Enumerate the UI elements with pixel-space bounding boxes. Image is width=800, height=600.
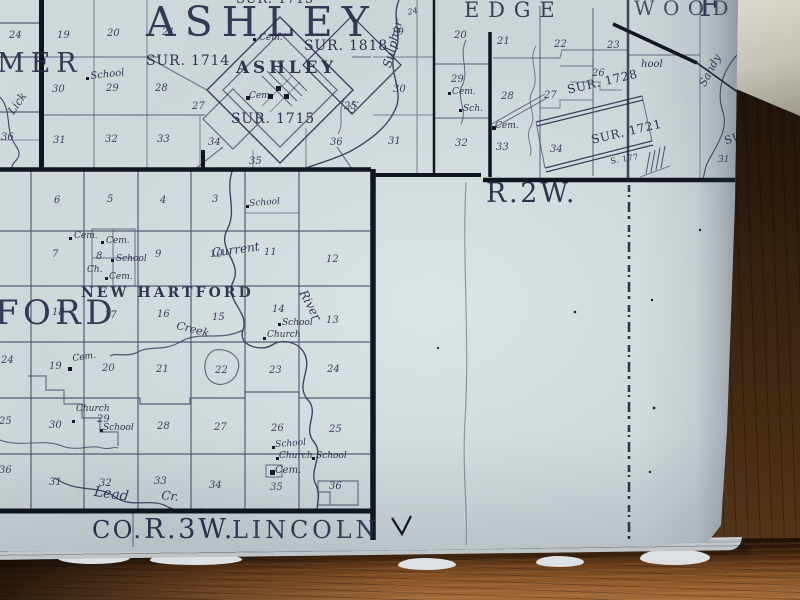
section-number: 25 — [0, 417, 12, 427]
section-number: 4 — [160, 196, 166, 206]
section-number: 27 — [544, 91, 557, 101]
poi-label: Sch. — [463, 105, 483, 114]
section-number: 18 — [52, 308, 65, 318]
section-number: 21 — [162, 28, 175, 38]
section-number: 31 — [49, 478, 62, 488]
poi-marker — [278, 323, 281, 326]
section-number: 24 — [407, 7, 419, 17]
poi-label: Cem. — [452, 88, 476, 97]
section-number: 20 — [454, 31, 467, 41]
poi-label: Cem. — [259, 34, 283, 43]
section-number: 25 — [329, 425, 342, 435]
range-label: R.2W. — [486, 180, 577, 207]
township-name-partial-mer: MER — [0, 50, 83, 77]
survey-label: S. 177 — [610, 153, 639, 166]
section-number: 36 — [329, 482, 342, 492]
poi-marker — [448, 92, 451, 95]
section-number: 21 — [156, 365, 169, 375]
poi-label: School — [103, 424, 134, 433]
section-number: 16 — [157, 310, 170, 320]
section-number: 7 — [52, 250, 58, 260]
section-number: 30 — [49, 421, 62, 431]
section-number: 22 — [554, 40, 567, 50]
poi-marker — [270, 470, 275, 475]
poi-marker — [253, 38, 256, 41]
poi-label: Cem. — [72, 352, 97, 364]
section-number: 32 — [105, 135, 118, 145]
poi-marker — [101, 241, 104, 244]
poi-label: School — [282, 319, 313, 328]
section-number: 14 — [272, 305, 285, 315]
poi-marker — [246, 205, 249, 208]
section-number: 36 — [330, 138, 343, 148]
section-number: 31 — [53, 136, 66, 146]
poi-label: Cem. — [106, 237, 130, 246]
poi-marker — [69, 237, 72, 240]
poi-marker — [86, 77, 89, 80]
section-number: 36 — [0, 466, 12, 476]
poi-label: Ch. — [87, 266, 103, 275]
section-number: 11 — [264, 248, 277, 258]
poi-label: Church — [76, 405, 110, 414]
section-number: 9 — [155, 250, 161, 260]
section-number: 6 — [54, 196, 60, 206]
poi-label: Cem. — [109, 273, 133, 282]
section-number: 27 — [192, 102, 205, 112]
section-number: 20 — [102, 364, 115, 374]
poi-label: Church — [267, 331, 301, 340]
poi-label: School — [316, 452, 347, 461]
section-number: 12 — [326, 255, 339, 265]
torn-paper-fragment — [398, 558, 456, 570]
poi-label: School — [275, 439, 306, 450]
poi-marker — [492, 126, 496, 130]
poi-marker — [284, 94, 289, 99]
section-number: 34 — [550, 145, 563, 155]
section-number: 8 — [96, 252, 102, 262]
poi-marker — [272, 446, 275, 449]
township-label-lincoln: LINCOLN — [232, 518, 380, 542]
section-number: 24 — [9, 31, 22, 41]
section-number: 35 — [249, 157, 262, 167]
section-number: 29 — [106, 84, 119, 94]
section-number: 3 — [212, 195, 218, 205]
photo-of-plat-map-on-table: SUR. 1715ASHLEYMER24192021SchoolLick3029… — [0, 0, 800, 600]
section-number: 31 — [388, 137, 401, 147]
section-number: 19 — [49, 362, 62, 372]
creek-name: Creek — [175, 320, 210, 339]
creek-name: Cr. — [347, 99, 362, 116]
section-number: 34 — [209, 481, 222, 491]
survey-label: SUR. 1818 — [304, 39, 388, 53]
section-number: 35 — [270, 483, 283, 493]
town-name-ashley: ASHLEY — [236, 60, 337, 77]
section-number: 29 — [451, 75, 464, 85]
section-number: 33 — [157, 135, 170, 145]
survey-label: SUR. 1714 — [146, 54, 230, 68]
poi-label: Church — [279, 452, 313, 461]
poi-marker — [105, 277, 108, 280]
poi-marker — [100, 429, 103, 432]
section-number: 33 — [496, 143, 509, 153]
poi-label: Cem. — [495, 122, 519, 131]
poi-marker — [268, 94, 273, 99]
poi-label: Cem. — [74, 232, 98, 241]
section-number: 24 — [1, 356, 14, 366]
poi-label: School — [116, 255, 147, 264]
creek-name: Cr. — [161, 489, 180, 503]
section-number: 13 — [326, 316, 339, 326]
creek-name: Sulphur — [381, 19, 404, 69]
poi-marker — [459, 109, 462, 112]
section-number: 32 — [455, 139, 468, 149]
section-number: 28 — [501, 92, 514, 102]
section-number: 23 — [269, 366, 282, 376]
section-number: 21 — [497, 37, 510, 47]
torn-paper-fragment — [640, 549, 710, 565]
section-number: 22 — [215, 366, 228, 376]
poi-label: hool — [641, 60, 663, 70]
section-number: 26 — [271, 424, 284, 434]
range-label-bottom: R.3W. — [144, 516, 235, 543]
poi-marker — [263, 337, 266, 340]
poi-marker — [111, 259, 114, 262]
section-number: 30 — [393, 85, 406, 95]
river-name: Current — [211, 240, 260, 259]
creek-name: Lick — [6, 91, 29, 117]
township-name-edgewood: EDGE — [464, 0, 564, 21]
torn-paper-fragment — [536, 556, 584, 567]
poi-marker — [312, 457, 315, 460]
county-label: CO. — [92, 518, 143, 542]
section-number: 5 — [107, 195, 113, 205]
section-number: 28 — [157, 422, 170, 432]
poi-marker — [276, 457, 279, 460]
poi-label: School — [249, 198, 280, 209]
section-number: 20 — [107, 29, 120, 39]
map-labels-layer: SUR. 1715ASHLEYMER24192021SchoolLick3029… — [0, 0, 800, 600]
section-number: 23 — [607, 41, 620, 51]
poi-marker — [276, 86, 281, 91]
section-number: 30 — [52, 85, 65, 95]
survey-label: SUR. 1721 — [590, 118, 663, 146]
poi-marker — [68, 367, 72, 371]
section-number: 19 — [57, 31, 70, 41]
poi-label: School — [90, 68, 125, 82]
section-number: 27 — [214, 423, 227, 433]
poi-label: Cem. — [275, 466, 301, 476]
section-number: 28 — [155, 84, 168, 94]
section-number: 36 — [1, 133, 14, 143]
section-number: 24 — [327, 365, 340, 375]
poi-marker — [246, 96, 250, 100]
map-page: SUR. 1715ASHLEYMER24192021SchoolLick3029… — [0, 0, 742, 554]
creek-name: Lead — [93, 485, 129, 504]
section-number: 17 — [104, 311, 117, 321]
section-number: 15 — [212, 313, 225, 323]
survey-label: SUR. 1715 — [231, 112, 315, 126]
section-number: 34 — [208, 138, 221, 148]
poi-marker — [72, 420, 75, 423]
section-number: 33 — [154, 477, 167, 487]
